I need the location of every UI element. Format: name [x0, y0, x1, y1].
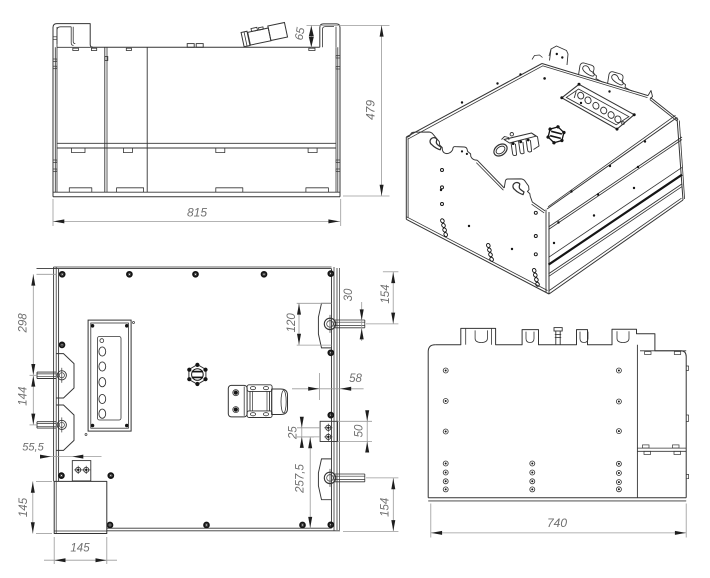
- svg-text:120: 120: [286, 313, 298, 333]
- svg-text:298: 298: [18, 313, 30, 334]
- svg-text:144: 144: [18, 387, 30, 406]
- svg-text:145: 145: [70, 543, 90, 555]
- svg-text:30: 30: [343, 288, 355, 301]
- svg-text:154: 154: [380, 284, 392, 303]
- svg-text:479: 479: [364, 100, 378, 120]
- svg-text:815: 815: [187, 206, 207, 220]
- svg-text:154: 154: [380, 498, 392, 517]
- svg-text:55,5: 55,5: [22, 442, 44, 454]
- svg-text:740: 740: [547, 516, 567, 530]
- svg-text:58: 58: [349, 373, 362, 385]
- svg-text:50: 50: [354, 424, 366, 437]
- svg-text:25: 25: [288, 426, 300, 440]
- svg-text:257,5: 257,5: [295, 464, 307, 494]
- svg-text:145: 145: [18, 497, 30, 517]
